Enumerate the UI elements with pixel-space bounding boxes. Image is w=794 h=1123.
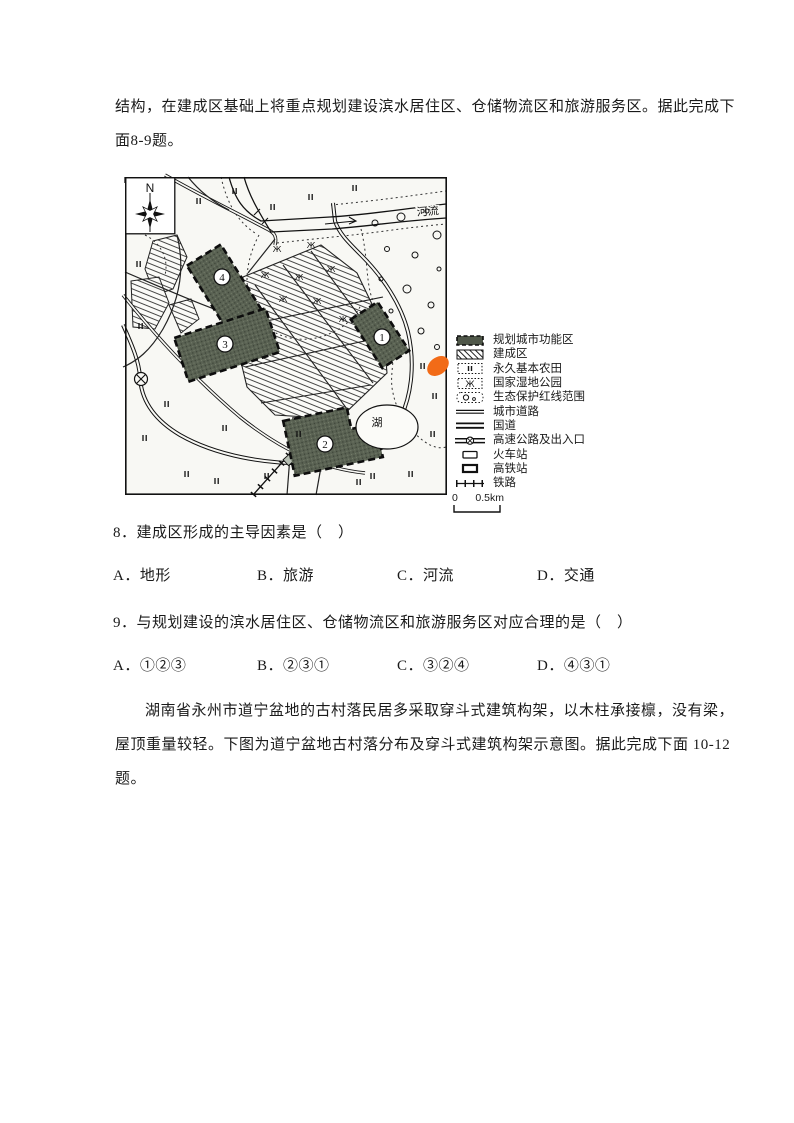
legend-item-built-up: 建成区 <box>452 347 627 361</box>
map-scale: 0 0.5km <box>452 492 512 514</box>
svg-text:Ж: Ж <box>327 265 336 274</box>
paragraph-line: 题。 <box>115 768 685 802</box>
legend-item-national-road: 国道 <box>452 419 627 433</box>
railway-swatch <box>452 477 488 490</box>
railway-station-swatch <box>452 448 488 461</box>
q8-option-d: D．交通 <box>537 564 595 585</box>
q9-option-c: C．③②④ <box>397 654 470 675</box>
scale-bar <box>452 504 506 514</box>
scale-zero: 0 <box>452 492 458 504</box>
scale-distance: 0.5km <box>475 492 504 504</box>
legend-item-wetland: Ж 国家湿地公园 <box>452 376 627 390</box>
lake-label: 湖 <box>372 416 383 429</box>
zone-2-badge: 2 <box>317 436 333 452</box>
legend-label: 生态保护红线范围 <box>493 391 585 403</box>
legend-item-expressway: 高速公路及出入口 <box>452 433 627 447</box>
q9-option-b: B．②③① <box>257 654 330 675</box>
question-8-stem: 8．建成区形成的主导因素是（ ） <box>113 521 354 542</box>
legend-item-hsr-station: 高铁站 <box>452 462 627 476</box>
svg-text:Ж: Ж <box>273 245 282 254</box>
legend-label: 高铁站 <box>493 463 528 475</box>
legend-item-eco-redline: 生态保护红线范围 <box>452 390 627 404</box>
question-9-options: A．①②③ B．②③① C．③②④ D．④③① <box>113 654 713 674</box>
legend-label: 城市道路 <box>493 406 539 418</box>
expressway-swatch <box>452 434 488 447</box>
city-road-swatch <box>452 405 488 418</box>
svg-text:Ж: Ж <box>307 241 316 250</box>
planned-zone-swatch <box>452 334 488 347</box>
svg-text:1: 1 <box>379 332 385 344</box>
svg-text:Ж: Ж <box>465 380 474 390</box>
legend-item-city-road: 城市道路 <box>452 404 627 418</box>
paragraph-line: 屋顶重量较轻。下图为道宁盆地古村落分布及穿斗式建筑构架示意图。据此完成下面 10… <box>115 734 685 768</box>
question-9-stem: 9．与规划建设的滨水居住区、仓储物流区和旅游服务区对应合理的是（ ） <box>113 611 633 632</box>
intro-paragraph-10-12: 湖南省永州市道宁盆地的古村落民居多采取穿斗式建筑构架，以木柱承接檩，没有梁， 屋… <box>115 700 685 802</box>
legend-item-farmland: 永久基本农田 <box>452 362 627 376</box>
map-legend: 规划城市功能区 建成区 永久基本农田 Ж 国家湿地公园 <box>452 333 627 490</box>
intro-paragraph-8-9: 结构，在建成区基础上将重点规划建设滨水居住区、仓储物流区和旅游服务区。据此完成下… <box>115 96 685 164</box>
river-label: 河流 <box>416 203 439 219</box>
legend-label: 国道 <box>493 420 516 432</box>
svg-text:Ж: Ж <box>295 273 304 282</box>
svg-text:Ж: Ж <box>261 271 270 280</box>
compass-rose: N <box>126 178 175 234</box>
zone-1-badge: 1 <box>374 329 390 345</box>
eco-redline-swatch <box>452 391 488 404</box>
farmland-swatch <box>452 362 488 375</box>
q8-option-c: C．河流 <box>397 564 454 585</box>
lake: 湖 <box>356 405 418 449</box>
built-up-swatch <box>452 348 488 361</box>
national-road-swatch <box>452 419 488 432</box>
paragraph-line: 结构，在建成区基础上将重点规划建设滨水居住区、仓储物流区和旅游服务区。据此完成下 <box>115 96 685 130</box>
planning-map-figure: 河流 湖 <box>125 177 447 495</box>
legend-label: 铁路 <box>493 477 516 489</box>
legend-item-planned-zone: 规划城市功能区 <box>452 333 627 347</box>
q8-option-b: B．旅游 <box>257 564 314 585</box>
paragraph-line: 湖南省永州市道宁盆地的古村落民居多采取穿斗式建筑构架，以木柱承接檩，没有梁， <box>115 700 685 734</box>
q8-option-a: A．地形 <box>113 564 171 585</box>
svg-text:3: 3 <box>222 339 228 351</box>
wetland-swatch: Ж <box>452 377 488 390</box>
q9-option-d: D．④③① <box>537 654 610 675</box>
svg-text:Ж: Ж <box>339 315 348 324</box>
zone-4-badge: 4 <box>214 269 230 285</box>
legend-item-railway: 铁路 <box>452 476 627 490</box>
paragraph-line: 面8-9题。 <box>115 130 685 164</box>
legend-label: 规划城市功能区 <box>493 334 574 346</box>
legend-item-railway-station: 火车站 <box>452 447 627 461</box>
svg-text:2: 2 <box>322 439 328 451</box>
svg-text:4: 4 <box>219 272 225 284</box>
planning-map: 河流 湖 <box>125 177 447 495</box>
legend-label: 永久基本农田 <box>493 363 562 375</box>
zone-3-badge: 3 <box>217 336 233 352</box>
q9-option-a: A．①②③ <box>113 654 186 675</box>
expressway-interchange-icon <box>135 373 148 386</box>
legend-label: 国家湿地公园 <box>493 377 562 389</box>
legend-label: 高速公路及出入口 <box>493 434 585 446</box>
hsr-station-swatch <box>452 462 488 475</box>
svg-text:Ж: Ж <box>279 295 288 304</box>
legend-label: 火车站 <box>493 449 528 461</box>
exam-page: 结构，在建成区基础上将重点规划建设滨水居住区、仓储物流区和旅游服务区。据此完成下… <box>0 0 794 1123</box>
question-8-options: A．地形 B．旅游 C．河流 D．交通 <box>113 564 713 584</box>
north-label: N <box>146 181 155 195</box>
svg-text:Ж: Ж <box>313 297 322 306</box>
legend-label: 建成区 <box>493 348 528 360</box>
